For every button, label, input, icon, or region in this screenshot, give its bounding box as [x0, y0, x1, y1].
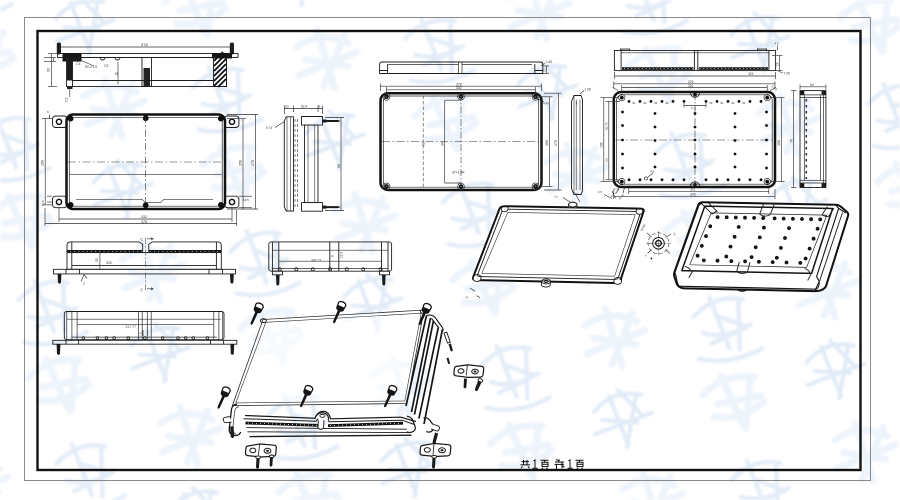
svg-text:0.74: 0.74 — [266, 126, 272, 130]
svg-text:34: 34 — [440, 142, 444, 146]
svg-text:342.77: 342.77 — [311, 259, 321, 263]
svg-text:30: 30 — [665, 101, 669, 105]
svg-text:14: 14 — [775, 62, 779, 66]
svg-text:37×1.5R: 37×1.5R — [452, 171, 465, 175]
svg-text:65: 65 — [115, 72, 119, 76]
svg-text:30: 30 — [709, 101, 713, 105]
svg-text:378: 378 — [141, 220, 147, 224]
svg-text:332: 332 — [456, 86, 462, 90]
svg-text:76: 76 — [789, 139, 793, 143]
svg-text:1.62: 1.62 — [546, 60, 552, 64]
svg-text:4-R7: 4-R7 — [543, 102, 550, 106]
svg-text:52.4: 52.4 — [301, 105, 307, 109]
svg-text:2.5: 2.5 — [598, 190, 602, 194]
svg-text:156: 156 — [777, 140, 781, 146]
svg-text:321: 321 — [748, 72, 754, 76]
svg-text:175: 175 — [251, 160, 255, 166]
svg-text:30: 30 — [731, 101, 735, 105]
svg-text:C: C — [140, 287, 143, 292]
svg-text:77.5: 77.5 — [691, 107, 697, 111]
svg-text:90: 90 — [337, 164, 341, 168]
svg-text:4.5: 4.5 — [775, 42, 780, 46]
svg-text:7.06: 7.06 — [784, 72, 790, 76]
svg-text:52: 52 — [422, 142, 426, 146]
svg-text:54: 54 — [810, 83, 814, 87]
svg-text:156: 156 — [239, 160, 243, 166]
svg-text:156: 156 — [545, 140, 549, 146]
svg-text:R0.4 1.5: R0.4 1.5 — [85, 65, 97, 69]
svg-text:332: 332 — [141, 215, 147, 219]
svg-text:378: 378 — [456, 82, 462, 86]
svg-text:30: 30 — [720, 101, 724, 105]
svg-text:156: 156 — [41, 160, 45, 166]
svg-text:52: 52 — [95, 258, 99, 262]
svg-text:321: 321 — [688, 84, 694, 88]
svg-text:217.77: 217.77 — [126, 325, 136, 329]
svg-text:30: 30 — [654, 101, 658, 105]
svg-text:376: 376 — [688, 80, 694, 84]
svg-text:325: 325 — [106, 261, 112, 265]
svg-text:10: 10 — [285, 105, 289, 109]
svg-text:1.5: 1.5 — [76, 62, 81, 66]
svg-text:378: 378 — [690, 193, 696, 197]
svg-text:156: 156 — [600, 142, 604, 148]
svg-text:1.08: 1.08 — [585, 88, 591, 92]
svg-text:7.5: 7.5 — [76, 57, 81, 61]
svg-text:30: 30 — [742, 101, 746, 105]
svg-text:7.06: 7.06 — [614, 187, 620, 191]
svg-text:2.5: 2.5 — [104, 64, 109, 68]
svg-text:321: 321 — [690, 188, 696, 192]
svg-text:30: 30 — [632, 101, 636, 105]
svg-text:6: 6 — [318, 105, 320, 109]
svg-text:13: 13 — [543, 68, 547, 72]
svg-text:4-8: 4-8 — [650, 170, 655, 174]
svg-text:90: 90 — [47, 68, 51, 72]
svg-text:5.2: 5.2 — [65, 97, 69, 102]
svg-text:6.5: 6.5 — [605, 157, 609, 162]
svg-text:30: 30 — [643, 101, 647, 105]
svg-text:378: 378 — [141, 42, 148, 47]
svg-text:3: 3 — [576, 102, 578, 106]
svg-text:11.5: 11.5 — [41, 200, 45, 206]
svg-text:12.3: 12.3 — [340, 252, 344, 258]
svg-text:13.5: 13.5 — [243, 198, 249, 202]
svg-text:C: C — [140, 237, 143, 242]
svg-text:2: 2 — [83, 282, 85, 286]
svg-text:8: 8 — [331, 255, 335, 257]
svg-text:175: 175 — [554, 140, 558, 146]
svg-text:50.75: 50.75 — [605, 122, 609, 130]
